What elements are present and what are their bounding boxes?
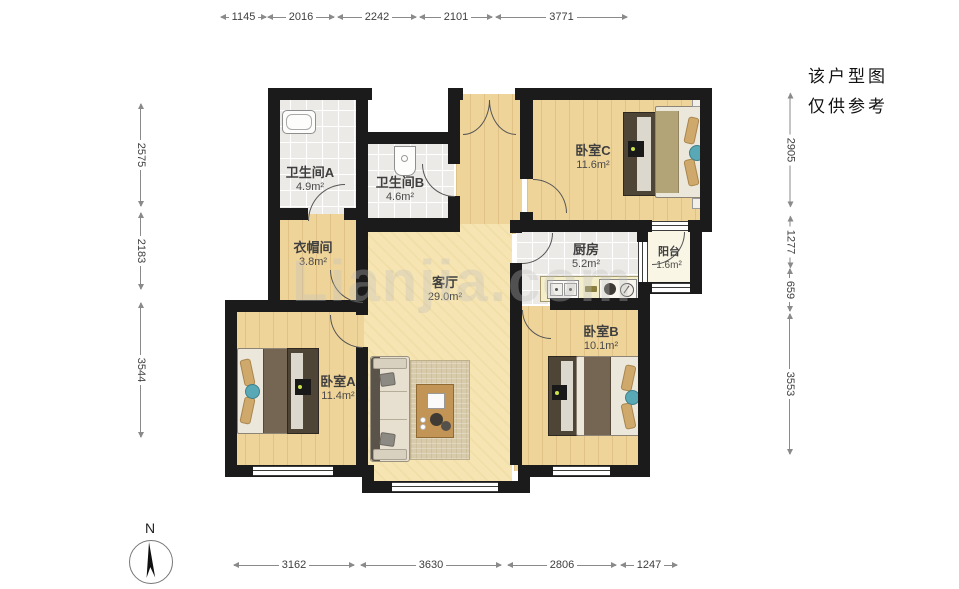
burner bbox=[620, 283, 634, 297]
wall bbox=[550, 298, 650, 310]
dim-value: 2242 bbox=[362, 10, 392, 24]
pillow bbox=[620, 364, 636, 392]
room-name: 卧室C bbox=[553, 143, 633, 159]
arrowhead bbox=[787, 313, 793, 319]
arrowhead bbox=[487, 14, 493, 20]
bathroom-b-label: 卫生间B 4.6m² bbox=[360, 175, 440, 205]
sink-basin bbox=[550, 283, 563, 296]
window-balcony-bottom bbox=[652, 283, 690, 293]
room-name: 衣帽间 bbox=[273, 240, 353, 256]
room-area: 1.6m² bbox=[639, 260, 699, 273]
wall bbox=[356, 132, 460, 144]
room-name: 厨房 bbox=[546, 242, 626, 258]
wall bbox=[356, 218, 460, 232]
arrowhead bbox=[787, 268, 793, 274]
wall bbox=[344, 208, 368, 220]
dim-right-2: 1277 bbox=[784, 216, 798, 269]
dim-value: 3162 bbox=[279, 558, 309, 572]
pillow bbox=[620, 402, 636, 430]
room-name: 客厅 bbox=[405, 275, 485, 291]
arrowhead bbox=[787, 449, 793, 455]
duvet bbox=[263, 349, 288, 433]
dim-right-4: 3553 bbox=[783, 313, 797, 455]
pillow bbox=[683, 116, 699, 145]
wall bbox=[520, 88, 533, 179]
basin-drain bbox=[401, 155, 408, 162]
floorplan-page: 卫生间A 4.9m² 卫生间B 4.6m² 衣帽间 3.8m² 卧室C 11.6… bbox=[0, 0, 959, 589]
dim-value: 3771 bbox=[546, 10, 576, 24]
room-area: 11.6m² bbox=[553, 159, 633, 173]
dim-value: 2575 bbox=[134, 140, 148, 170]
window-balcony-top bbox=[652, 221, 688, 231]
arrowhead bbox=[507, 562, 513, 568]
window-living-room bbox=[392, 482, 498, 492]
wall bbox=[225, 300, 368, 312]
wall bbox=[637, 232, 648, 242]
kitchen-sink bbox=[547, 280, 579, 299]
arrowhead bbox=[138, 284, 144, 290]
dim-left-1: 2575 bbox=[134, 103, 148, 207]
dim-value: 3544 bbox=[134, 355, 148, 385]
dim-bottom-2: 3630 bbox=[360, 558, 502, 572]
dim-bottom-1: 3162 bbox=[233, 558, 355, 572]
arrowhead bbox=[411, 14, 417, 20]
cloakroom-label: 衣帽间 3.8m² bbox=[273, 240, 353, 270]
sofa-back bbox=[371, 357, 380, 461]
arrowhead bbox=[788, 216, 794, 222]
dim-top-3: 2242 bbox=[337, 10, 417, 24]
arrowhead bbox=[138, 201, 144, 207]
sofa-armrest bbox=[373, 449, 407, 460]
dim-value: 2806 bbox=[547, 558, 577, 572]
dim-value: 659 bbox=[783, 278, 797, 302]
washbasin bbox=[394, 146, 416, 176]
sink-basin bbox=[564, 283, 577, 296]
wall bbox=[638, 292, 650, 477]
wardrobe-bedroom-b bbox=[548, 356, 578, 436]
dim-bottom-3: 2806 bbox=[507, 558, 617, 572]
bed-bedroom-b bbox=[576, 356, 640, 436]
room-name: 卧室B bbox=[561, 324, 641, 340]
arrowhead bbox=[337, 14, 343, 20]
sofa bbox=[370, 356, 410, 462]
wall bbox=[688, 220, 712, 232]
room-area: 3.8m² bbox=[273, 256, 353, 270]
arrowhead bbox=[495, 14, 501, 20]
room-area: 5.2m² bbox=[546, 258, 626, 272]
wall bbox=[356, 347, 368, 477]
sofa-cushion-line bbox=[380, 419, 407, 420]
bathroom-a-label: 卫生间A 4.9m² bbox=[270, 165, 350, 195]
coffee-table bbox=[416, 384, 454, 438]
dim-left-3: 3544 bbox=[134, 302, 148, 438]
cutting-board bbox=[585, 286, 597, 292]
duvet bbox=[584, 357, 611, 435]
wall bbox=[225, 300, 237, 477]
burner bbox=[604, 283, 616, 295]
window-bedroom-b bbox=[553, 466, 610, 476]
stove bbox=[599, 279, 637, 300]
living-room-label: 客厅 29.0m² bbox=[405, 275, 485, 305]
room-name: 卧室A bbox=[298, 374, 378, 390]
wall bbox=[448, 88, 460, 164]
sofa-armrest bbox=[373, 358, 407, 369]
compass: N bbox=[118, 520, 182, 586]
arrowhead bbox=[138, 432, 144, 438]
tv-indicator bbox=[555, 391, 559, 395]
bathtub-inner bbox=[286, 114, 312, 130]
balcony-label: 阳台 1.6m² bbox=[639, 246, 699, 272]
north-label: N bbox=[118, 520, 182, 536]
arrowhead bbox=[329, 14, 335, 20]
bathtub bbox=[282, 110, 316, 134]
cup bbox=[420, 424, 426, 430]
arrowhead bbox=[496, 562, 502, 568]
arrowhead bbox=[220, 14, 226, 20]
arrowhead bbox=[349, 562, 355, 568]
wall bbox=[700, 88, 712, 232]
window-bedroom-a bbox=[253, 466, 333, 476]
bedroom-a-label: 卧室A 11.4m² bbox=[298, 374, 378, 404]
disclaimer-note: 该户型图 仅供参考 bbox=[808, 62, 948, 122]
arrowhead bbox=[672, 562, 678, 568]
arrowhead bbox=[622, 14, 628, 20]
duvet bbox=[656, 111, 679, 193]
sink-drain bbox=[569, 288, 572, 291]
wall bbox=[510, 263, 522, 465]
bedroom-c-label: 卧室C 11.6m² bbox=[553, 143, 633, 173]
dim-value: 1277 bbox=[784, 227, 798, 257]
bed-bedroom-a bbox=[237, 348, 289, 434]
dim-top-1: 1145 bbox=[220, 10, 267, 24]
room-area: 10.1m² bbox=[561, 340, 641, 354]
pillow bbox=[239, 396, 255, 425]
dim-value: 1247 bbox=[634, 558, 664, 572]
room-name: 阳台 bbox=[639, 246, 699, 260]
dim-top-5: 3771 bbox=[495, 10, 628, 24]
arrowhead bbox=[360, 562, 366, 568]
notepad bbox=[427, 393, 445, 409]
sink-drain bbox=[555, 288, 558, 291]
room-name: 卫生间B bbox=[360, 175, 440, 191]
dim-right-1: 2905 bbox=[784, 93, 798, 208]
dim-value: 3553 bbox=[783, 369, 797, 399]
dim-right-3: 659 bbox=[783, 268, 797, 312]
wall bbox=[268, 88, 280, 312]
wall bbox=[515, 88, 712, 100]
room-area: 4.6m² bbox=[360, 191, 440, 205]
dim-top-2: 2016 bbox=[267, 10, 335, 24]
arrowhead bbox=[419, 14, 425, 20]
arrowhead bbox=[620, 562, 626, 568]
sofa-cushion-line bbox=[380, 391, 407, 392]
sofa-pillow bbox=[379, 432, 396, 447]
room-area: 11.4m² bbox=[298, 390, 378, 404]
wall bbox=[513, 220, 652, 232]
kitchen-label: 厨房 5.2m² bbox=[546, 242, 626, 272]
arrowhead bbox=[787, 306, 793, 312]
cup bbox=[420, 417, 426, 423]
arrowhead bbox=[611, 562, 617, 568]
pillow bbox=[683, 158, 699, 187]
room-name: 卫生间A bbox=[270, 165, 350, 181]
arrowhead bbox=[788, 202, 794, 208]
wall bbox=[510, 220, 522, 233]
dim-value: 2183 bbox=[134, 236, 148, 266]
arrowhead bbox=[138, 103, 144, 109]
arrowhead bbox=[788, 93, 794, 99]
sofa-pillow bbox=[379, 372, 396, 387]
dim-value: 2905 bbox=[784, 135, 798, 165]
arrowhead bbox=[138, 212, 144, 218]
dim-value: 2101 bbox=[441, 10, 471, 24]
round-pillow bbox=[245, 384, 260, 399]
dim-value: 2016 bbox=[286, 10, 316, 24]
arrowhead bbox=[138, 302, 144, 308]
room-area: 4.9m² bbox=[270, 181, 350, 195]
dim-bottom-4: 1247 bbox=[620, 558, 678, 572]
dim-value: 1145 bbox=[229, 10, 259, 24]
pillow bbox=[239, 358, 255, 387]
arrowhead bbox=[233, 562, 239, 568]
dim-top-4: 2101 bbox=[419, 10, 493, 24]
disclaimer-line1: 该户型图 bbox=[808, 62, 948, 92]
stool bbox=[441, 421, 451, 431]
room-area: 29.0m² bbox=[405, 291, 485, 305]
wall bbox=[268, 208, 308, 220]
bedroom-b-label: 卧室B 10.1m² bbox=[561, 324, 641, 354]
dim-value: 3630 bbox=[416, 558, 446, 572]
tv-bedroom-b bbox=[552, 385, 567, 400]
dim-left-2: 2183 bbox=[134, 212, 148, 290]
arrowhead bbox=[267, 14, 273, 20]
disclaimer-line2: 仅供参考 bbox=[808, 92, 948, 122]
